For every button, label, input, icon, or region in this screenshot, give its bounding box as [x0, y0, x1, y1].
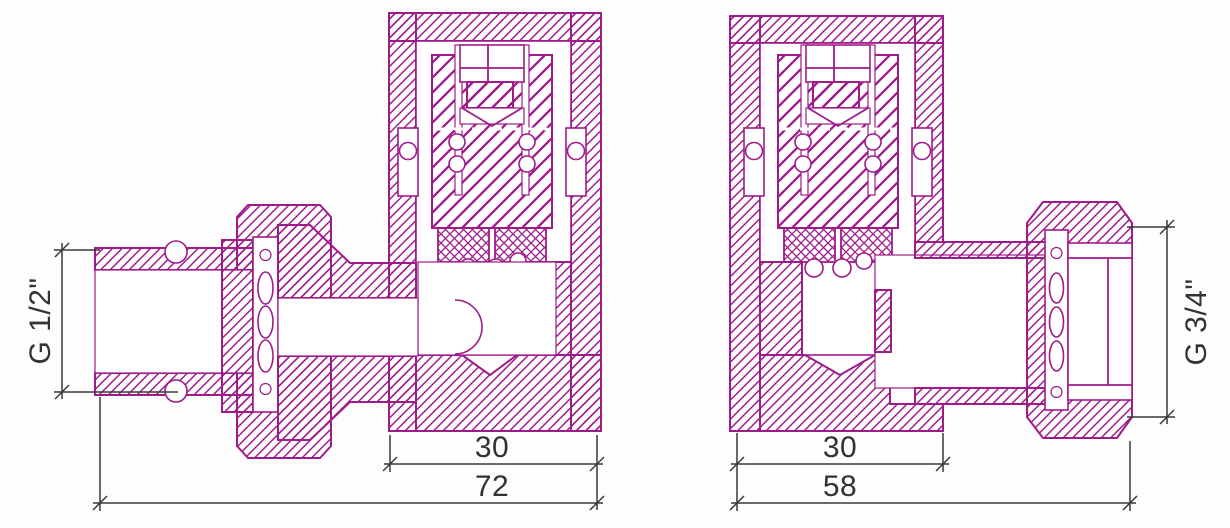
right-valve-section: G 3/4" 30 58	[730, 16, 1213, 511]
o-ring-top	[165, 241, 187, 263]
overall-width-label-right: 58	[823, 470, 857, 503]
left-flow-chamber	[418, 262, 556, 355]
body-width-label-left: 30	[475, 431, 509, 464]
overall-width-label-left: 72	[475, 470, 509, 503]
drawing-canvas: G 1/2" 30 72	[0, 0, 1230, 528]
left-tail-pipe	[95, 237, 278, 412]
tail-bore	[1068, 243, 1132, 400]
o-ring-bottom	[165, 380, 187, 402]
right-union-nut	[1027, 202, 1132, 438]
right-outlet-pipe	[875, 242, 1047, 404]
left-valve-section: G 1/2" 30 72	[24, 13, 604, 511]
thread-size-label-left: G 1/2"	[24, 277, 57, 364]
body-width-label-right: 30	[823, 431, 857, 464]
technical-drawing-svg: G 1/2" 30 72	[0, 0, 1230, 528]
thread-size-label-right: G 3/4"	[1180, 278, 1213, 365]
